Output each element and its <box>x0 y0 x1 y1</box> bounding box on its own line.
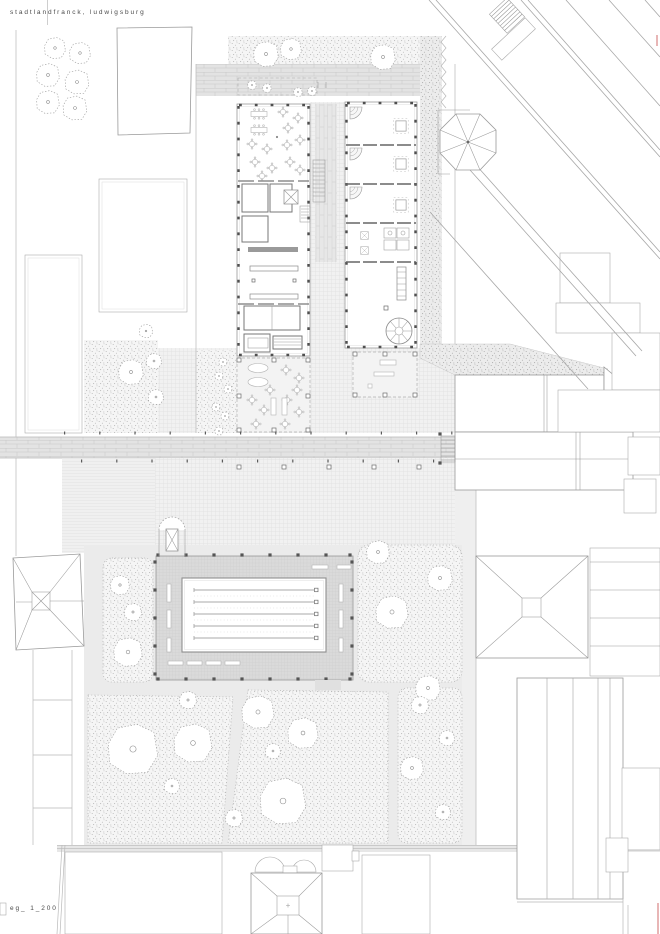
strip-building-west <box>33 650 72 845</box>
planting-patch-west <box>84 340 158 433</box>
building-south-east-seamed <box>517 678 660 934</box>
spiral-stair <box>386 318 412 344</box>
buildings-south <box>65 845 430 934</box>
bay-roof <box>255 857 285 872</box>
hip-roof-building-east <box>476 556 588 658</box>
planting-band-east <box>420 36 442 345</box>
drawing-sheet: stadtlandfranck, ludwigsburg eg_ 1_200 <box>0 0 660 934</box>
paver-band-north <box>196 64 441 96</box>
building-east-wing <box>345 102 417 348</box>
pool-basin <box>182 578 326 652</box>
project-title: stadtlandfranck, ludwigsburg <box>10 9 146 16</box>
pool-apron <box>315 680 341 690</box>
hip-roof-building-south <box>251 873 322 934</box>
site-plan-drawing <box>0 0 660 934</box>
octagonal-pavilion-roof <box>438 110 496 174</box>
garden-bed <box>358 545 462 682</box>
planting-band-over-east-blocks <box>420 344 608 375</box>
plaza-southwest <box>62 458 155 553</box>
drawing-scale-label: eg_ 1_200 <box>10 905 58 912</box>
plaza-south-of-road <box>155 458 460 553</box>
garden-bed <box>88 695 233 843</box>
road-band <box>0 437 470 458</box>
